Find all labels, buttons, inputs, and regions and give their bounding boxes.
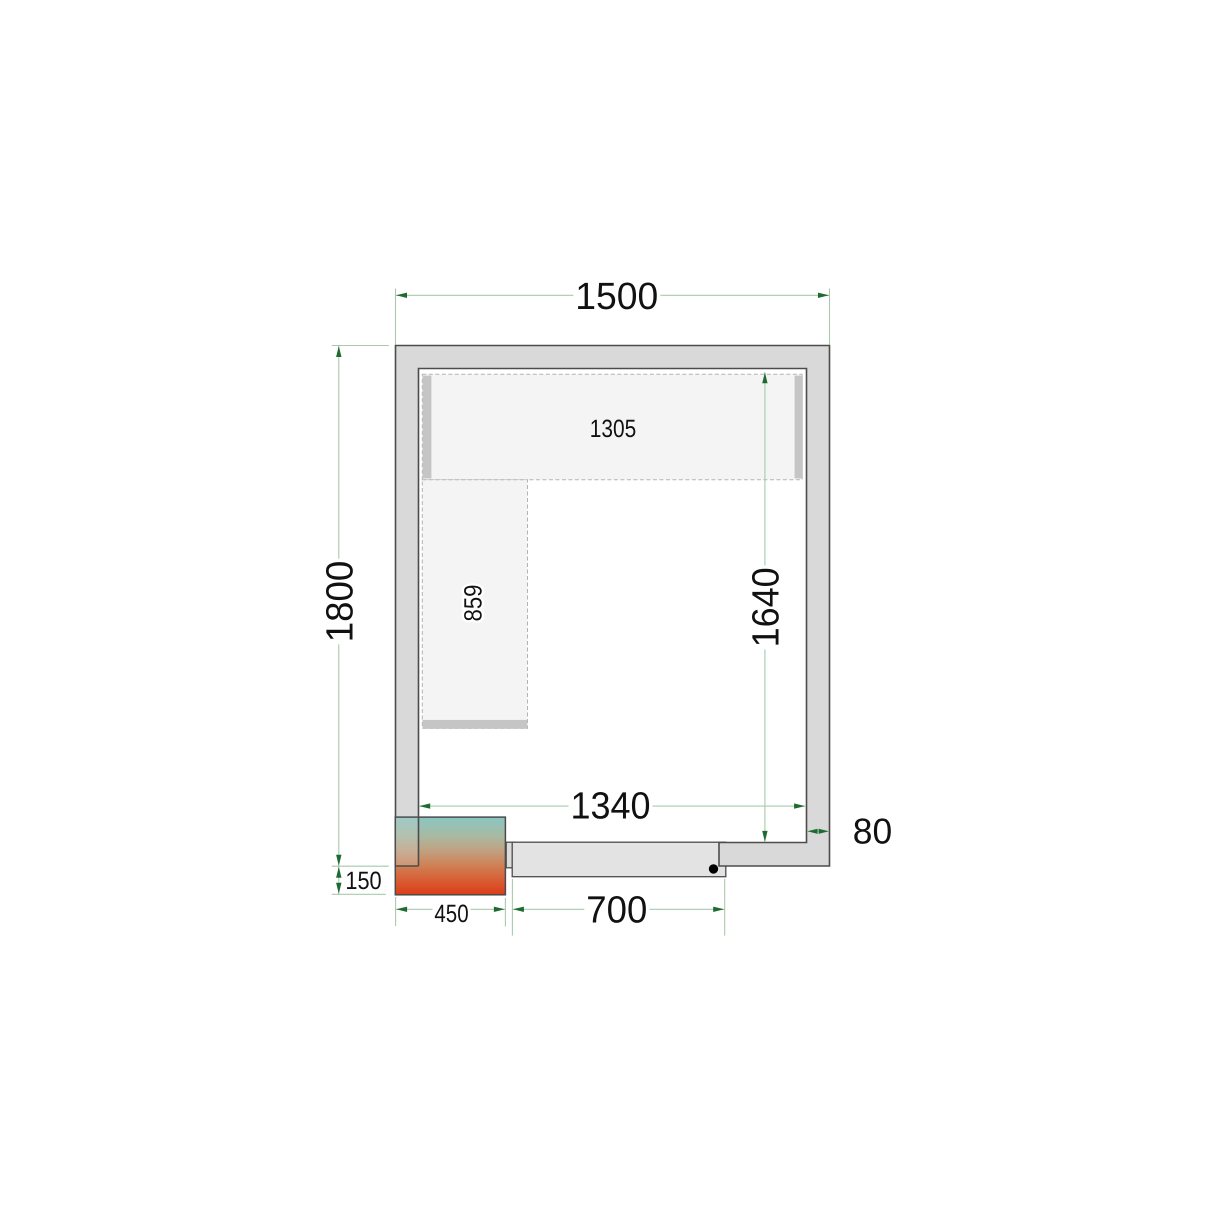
svg-text:1340: 1340 (571, 786, 651, 828)
svg-text:450: 450 (434, 900, 468, 928)
svg-text:150: 150 (345, 867, 381, 895)
svg-text:859: 859 (460, 585, 488, 622)
svg-text:700: 700 (586, 890, 647, 932)
svg-text:1305: 1305 (590, 415, 637, 443)
svg-text:1800: 1800 (319, 561, 361, 643)
svg-text:80: 80 (853, 811, 892, 852)
svg-text:1640: 1640 (746, 567, 788, 647)
svg-text:1500: 1500 (575, 276, 658, 318)
